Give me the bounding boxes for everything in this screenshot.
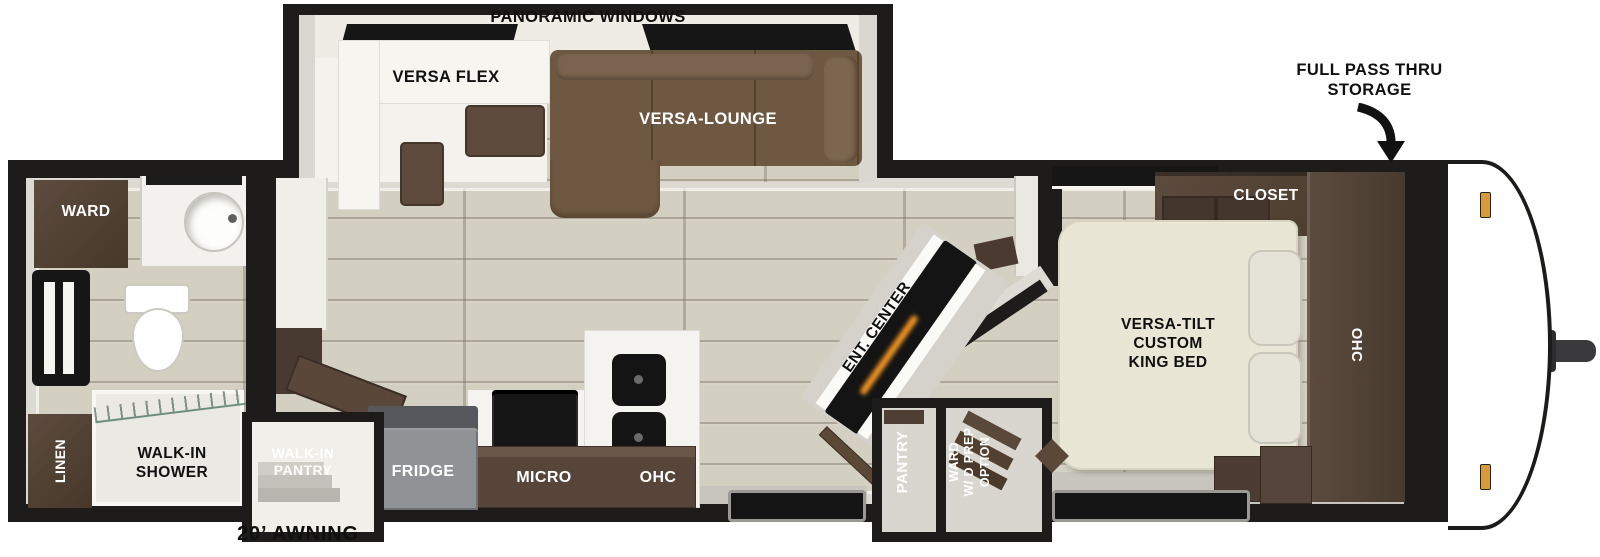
ward-label: WARD bbox=[42, 203, 130, 222]
awning-label: 20’ AWNING bbox=[203, 522, 393, 546]
sofa-chaise bbox=[550, 160, 660, 218]
entry-wall-face bbox=[276, 178, 328, 330]
walk-in-shower-label: WALK-IN SHOWER bbox=[108, 445, 236, 483]
full-pass-thru-storage-label: FULL PASS THRU STORAGE bbox=[1262, 60, 1477, 100]
pantry-step-3 bbox=[258, 488, 340, 502]
versa-flex-label: VERSA FLEX bbox=[366, 67, 526, 87]
bathroom-sink-drain bbox=[228, 214, 237, 223]
storage-arrow-icon bbox=[1352, 103, 1410, 165]
rv-floorplan: PANORAMIC WINDOWS VERSA FLEX VERSA-LOUNG… bbox=[0, 0, 1600, 557]
versa-flex-counter-side bbox=[338, 40, 380, 210]
versa-lounge-label: VERSA-LOUNGE bbox=[628, 109, 788, 129]
front-cap bbox=[1448, 160, 1552, 530]
bedroom-ohc-label: OHC bbox=[1347, 311, 1365, 379]
bathroom-ward-cabinet bbox=[34, 180, 128, 268]
walk-in-pantry-label: WALK-IN PANTRY bbox=[252, 445, 354, 479]
bathroom-mirror-strip bbox=[146, 176, 242, 185]
linen-label: LINEN bbox=[52, 426, 70, 496]
slideout-left-wallface bbox=[299, 15, 315, 182]
fridge-label: FRIDGE bbox=[374, 462, 472, 482]
kitchen-sink-drain-1 bbox=[634, 375, 643, 384]
bathroom-window-pane-1 bbox=[44, 282, 55, 374]
front-marker-top bbox=[1480, 192, 1491, 218]
sofa-arm bbox=[824, 56, 858, 162]
sofa-back-cushions bbox=[556, 54, 814, 80]
closet-label: CLOSET bbox=[1218, 187, 1314, 206]
fridge bbox=[368, 406, 478, 510]
bedroom-door-mat bbox=[1052, 490, 1250, 522]
bedroom-nightstand-2 bbox=[1260, 446, 1312, 504]
ottoman-small bbox=[400, 142, 444, 206]
bathroom-window-pane-2 bbox=[63, 282, 74, 374]
bathroom-window bbox=[32, 270, 90, 386]
pantry-label: PANTRY bbox=[894, 418, 914, 506]
ottoman-large bbox=[465, 105, 545, 157]
kitchen-sink-drain-2 bbox=[634, 433, 643, 442]
entry-door-mat bbox=[728, 490, 866, 522]
panoramic-windows-label: PANORAMIC WINDOWS bbox=[428, 7, 748, 27]
front-marker-bottom bbox=[1480, 464, 1491, 490]
micro-label: MICRO bbox=[500, 468, 588, 488]
kitchen-ohc-label: OHC bbox=[622, 468, 694, 488]
ward-wd-prep-label: WARD W/ D PREP OPTION bbox=[947, 406, 1023, 518]
king-bed-label: VERSA-TILT CUSTOM KING BED bbox=[1068, 316, 1268, 373]
